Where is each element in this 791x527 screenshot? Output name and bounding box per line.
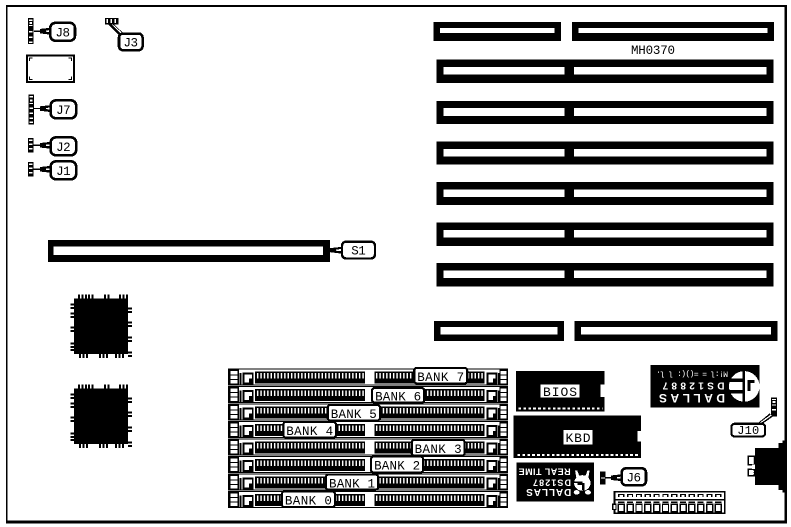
svg-text:J6: J6 — [627, 471, 642, 485]
svg-text:J2: J2 — [56, 141, 71, 155]
svg-text:KBD: KBD — [566, 431, 591, 446]
svg-text:BANK 6: BANK 6 — [375, 391, 421, 405]
svg-text:S1: S1 — [351, 245, 366, 259]
svg-text:BANK 1: BANK 1 — [329, 477, 375, 491]
svg-text:BANK 5: BANK 5 — [331, 408, 377, 422]
svg-text:REAL TIME: REAL TIME — [519, 467, 571, 477]
svg-text:J8: J8 — [56, 26, 71, 40]
svg-text:M!:l = =()(: l l.: M!:l = =()(: l l. — [656, 368, 728, 377]
svg-text:BANK 4: BANK 4 — [286, 425, 333, 439]
svg-text:J7: J7 — [56, 104, 71, 118]
svg-text:BANK 2: BANK 2 — [374, 460, 420, 474]
svg-text:J3: J3 — [124, 36, 139, 50]
svg-text:J1: J1 — [56, 165, 71, 179]
svg-text:BANK 0: BANK 0 — [285, 494, 332, 508]
svg-text:J10: J10 — [737, 424, 759, 438]
svg-text:BIOS: BIOS — [543, 385, 577, 400]
svg-text:DALLAS: DALLAS — [526, 486, 571, 497]
svg-text:BANK 7: BANK 7 — [417, 371, 464, 385]
svg-text:MH0370: MH0370 — [631, 44, 675, 58]
svg-text:BANK 3: BANK 3 — [415, 443, 462, 457]
